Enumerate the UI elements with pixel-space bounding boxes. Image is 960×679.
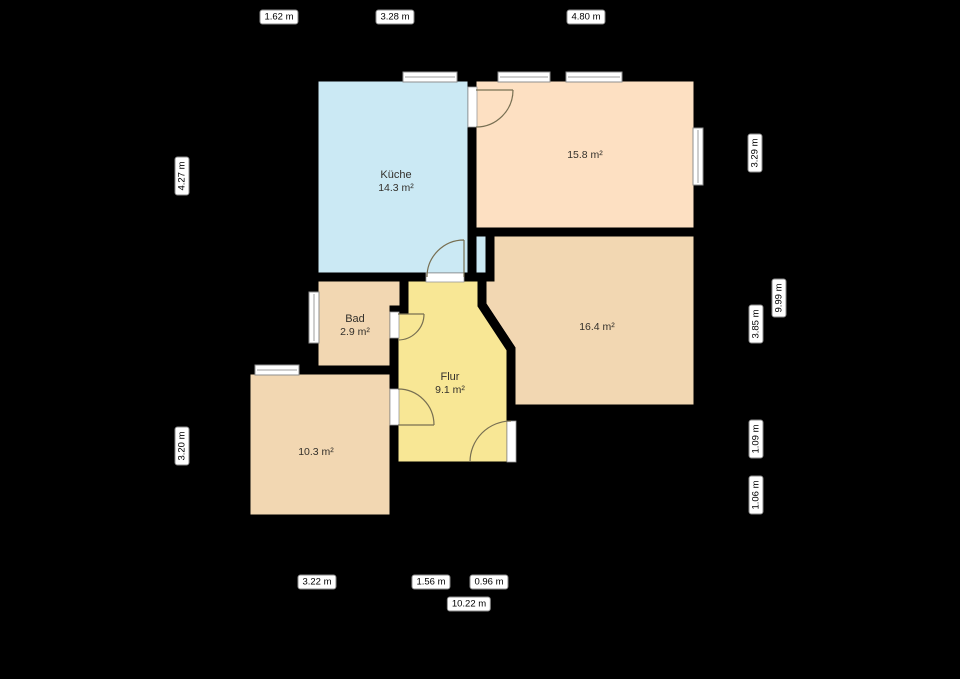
label-room16-area: 16.4 m² bbox=[579, 321, 615, 333]
room-10-3 bbox=[246, 370, 394, 519]
dim-right-5: 1.06 m bbox=[749, 475, 764, 514]
floor-plan: Küche 14.3 m² 15.8 m² Bad 2.9 m² Flur 9.… bbox=[0, 0, 960, 679]
dim-right-1: 3.29 m bbox=[748, 133, 763, 172]
dim-top-1: 1.62 m bbox=[259, 10, 298, 25]
dim-bottom-1: 3.22 m bbox=[297, 575, 336, 590]
label-flur-name: Flur bbox=[441, 371, 460, 383]
dim-bottom-3: 0.96 m bbox=[469, 575, 508, 590]
label-room10-area: 10.3 m² bbox=[298, 446, 334, 458]
dim-left-1: 4.27 m bbox=[175, 156, 190, 195]
dim-right-2: 9.99 m bbox=[772, 278, 787, 317]
label-bad-name: Bad bbox=[345, 313, 365, 325]
dim-bottom-2: 1.56 m bbox=[411, 575, 450, 590]
dim-top-3: 4.80 m bbox=[566, 10, 605, 25]
dim-right-3: 3.85 m bbox=[749, 304, 764, 343]
door-opening-kueche-flur bbox=[426, 273, 464, 282]
door-opening-room10-flur bbox=[390, 389, 399, 425]
label-bad-area: 2.9 m² bbox=[340, 326, 370, 338]
dim-top-2: 3.28 m bbox=[375, 10, 414, 25]
door-opening-bad-flur bbox=[390, 312, 399, 338]
dim-left-2: 3.20 m bbox=[175, 426, 190, 465]
door-opening-entrance bbox=[507, 421, 516, 462]
label-flur-area: 9.1 m² bbox=[435, 384, 465, 396]
label-kueche-area: 14.3 m² bbox=[378, 182, 414, 194]
dim-right-4: 1.09 m bbox=[749, 419, 764, 458]
dim-bottom-4: 10.22 m bbox=[447, 597, 491, 612]
door-opening-kueche-room15 bbox=[468, 87, 477, 127]
label-kueche-name: Küche bbox=[380, 169, 411, 181]
label-room15-area: 15.8 m² bbox=[567, 149, 603, 161]
